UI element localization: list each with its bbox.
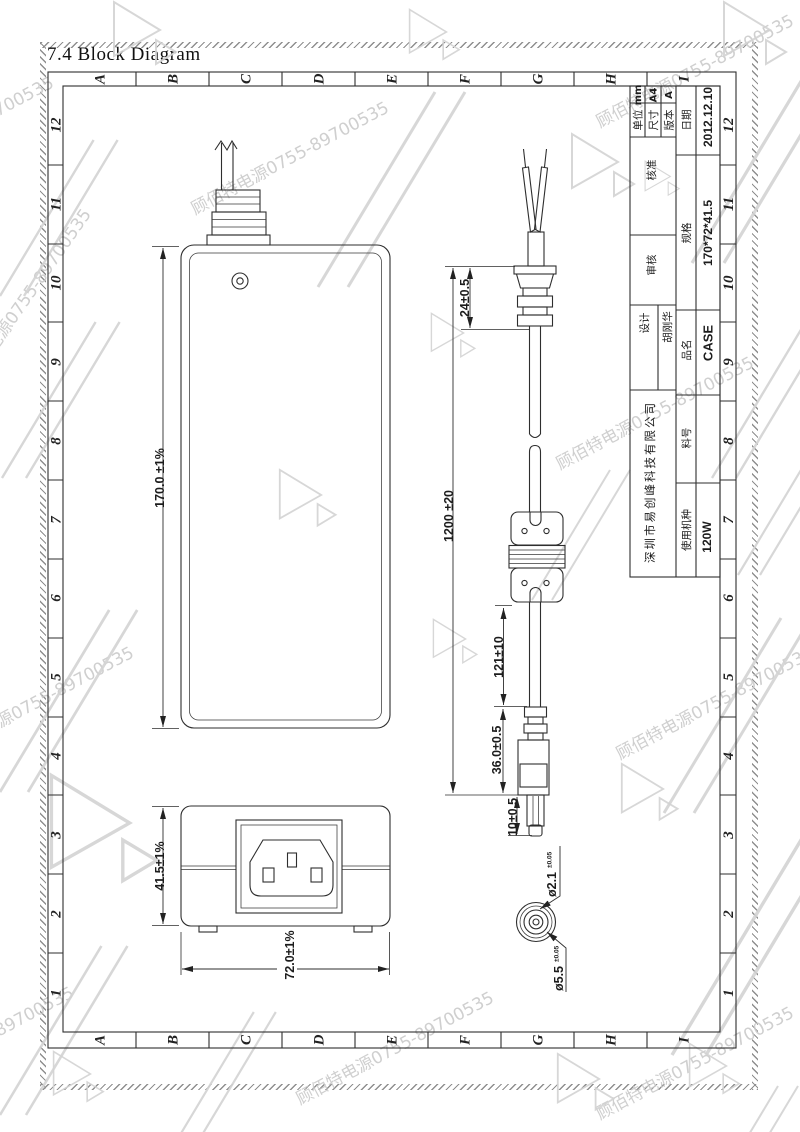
plug-barrel <box>527 795 544 826</box>
approve-label: 核准 <box>645 160 658 181</box>
grid-number: 2 <box>49 910 65 919</box>
version-value: A <box>664 91 675 99</box>
grid-number: 6 <box>721 594 737 602</box>
grid-number: 11 <box>49 197 65 211</box>
emi-filter <box>509 512 565 602</box>
watermark-slash <box>738 432 800 575</box>
grid-letter: I <box>677 1036 693 1044</box>
grid-number: 6 <box>49 594 65 602</box>
grid-letter: E <box>385 74 401 85</box>
wire-left <box>523 167 537 232</box>
grid-letter: B <box>166 74 182 85</box>
watermark-slash <box>2 322 120 478</box>
version-label: 版本 <box>663 109 676 130</box>
grid-letter: C <box>239 1034 255 1045</box>
grid-letter: H <box>604 1033 620 1047</box>
grid-letter: A <box>93 1035 109 1046</box>
cable-upper <box>530 326 541 512</box>
unit-label: 单位 <box>632 109 645 130</box>
parting-line <box>181 866 390 870</box>
cable-bushing <box>514 266 556 326</box>
size-value: A4 <box>649 88 660 103</box>
grid-number: 7 <box>721 516 737 524</box>
grid-letter: A <box>93 74 109 85</box>
product-label: 品名 <box>680 340 693 361</box>
watermark-layer: 顾佰特电源0755-89700535 顾佰特电源0755-89700535 顾佰… <box>0 2 800 1132</box>
grid-number: 4 <box>49 752 65 761</box>
grid-letter: G <box>531 73 547 84</box>
size-label: 尺寸 <box>647 110 660 131</box>
number-strip-dividers <box>48 165 736 953</box>
watermark-triangles <box>51 775 156 880</box>
case-outline <box>181 245 390 728</box>
watermark-text: 顾佰特电源0755-89700535 <box>0 73 57 194</box>
dim-case-width: 72.0±1% <box>181 930 390 979</box>
grid-number: 5 <box>49 673 65 681</box>
model-value: 120W <box>700 521 714 553</box>
barrel-outer-circle <box>517 903 556 942</box>
dim-text-case-width: 72.0±1% <box>283 930 297 979</box>
grid-number: 12 <box>49 117 65 133</box>
case-foot <box>199 926 217 932</box>
title-block: mm A4 A 单位 尺寸 版本 核准 审核 设计 胡刚华 日期 2012.12… <box>630 85 720 577</box>
watermark-slash <box>712 322 800 478</box>
grid-number: 12 <box>721 117 737 133</box>
watermark-text: 顾佰特电源0755-89700535 <box>0 643 137 764</box>
grid-numbers-right: 12 11 10 9 8 7 6 5 4 3 2 1 <box>721 117 737 997</box>
watermark-triangles <box>572 134 634 196</box>
case-foot <box>354 926 372 932</box>
c14-pin-right <box>311 868 322 882</box>
cable-break-squiggle <box>215 141 237 150</box>
watermark-triangles <box>280 470 336 526</box>
grid-number: 7 <box>49 516 65 524</box>
dim-text-bushing: 24±0.5 <box>458 279 472 317</box>
dim-text-pin-dia: ø2.1 <box>545 872 559 897</box>
watermark-text: 顾佰特电源0755-89700535 <box>613 643 800 764</box>
company-name: 深圳市易创峰科技有限公司 <box>643 401 657 563</box>
ac-cable-bushing <box>207 190 270 245</box>
dim-text-plug-body: 36.0±0.5 <box>490 726 504 775</box>
case-inner-outline <box>190 253 382 720</box>
grid-number: 10 <box>49 275 65 291</box>
plug-end-view: ø2.1 ±0.05 ø5.5 ±0.05 <box>517 846 567 992</box>
letter-strip-dividers <box>136 72 647 1048</box>
pin-circle <box>529 915 543 929</box>
grid-letter: D <box>312 73 328 85</box>
grid-number: 9 <box>49 358 65 366</box>
dc-plug <box>518 707 549 836</box>
grid-letter: E <box>385 1035 401 1046</box>
filter-notch-top <box>530 512 541 526</box>
review-label: 审核 <box>645 254 658 275</box>
grid-number: 10 <box>721 275 737 291</box>
grid-letters-bottom: A B C D E F G H I <box>93 1033 693 1047</box>
sheet-frame: A B C D E F G H I A B C D E F G H I <box>48 72 737 1048</box>
dim-cable-length: 1200 ±20 <box>442 268 456 793</box>
outer-frame <box>48 72 736 1048</box>
dim-text-plug-tip: 10±0.5 <box>506 798 520 836</box>
dim-text-barrel-tol: ±0.05 <box>554 945 561 962</box>
grid-letter: H <box>604 72 620 86</box>
spec-value: 170*72*41.5 <box>701 200 715 266</box>
grid-number: 1 <box>721 989 737 997</box>
plug-knurl <box>520 764 547 787</box>
grid-number: 4 <box>721 752 737 761</box>
grid-letter: D <box>312 1034 328 1046</box>
dim-text-cable-length: 1200 ±20 <box>442 490 456 542</box>
led-indicator-center <box>237 278 243 284</box>
grid-number: 9 <box>721 358 737 366</box>
grid-number: 5 <box>721 673 737 681</box>
watermark-slash <box>700 1086 798 1132</box>
heat-shrink <box>528 232 544 266</box>
grid-number: 2 <box>721 910 737 919</box>
watermark-text: 顾佰特电源0755-89700535 <box>0 983 77 1104</box>
product-value: CASE <box>701 325 716 361</box>
drawing-page: 7.4 Block Diagram 顾佰特电源0755-89700535 顾佰特… <box>0 0 800 1132</box>
watermark-text: 顾佰特电源0755-89700535 <box>293 988 497 1109</box>
watermark-slash <box>168 1012 276 1132</box>
dim-text-case-length: 170.0 ±1% <box>153 448 167 508</box>
grid-number: 3 <box>49 831 65 840</box>
wire-right <box>535 167 548 232</box>
filter-ribs <box>509 546 565 569</box>
date-value: 2012.12.10 <box>701 87 715 147</box>
grid-number: 3 <box>721 831 737 840</box>
grid-letter: C <box>239 73 255 84</box>
drawing-canvas: 顾佰特电源0755-89700535 顾佰特电源0755-89700535 顾佰… <box>0 0 800 1132</box>
adapter-end-view: 41.5±1% 72.0±1% <box>152 806 390 980</box>
dim-case-height: 41.5±1% <box>152 807 179 926</box>
unit-value: mm <box>633 85 644 106</box>
wire-tip <box>524 149 526 167</box>
dim-text-dc-cable: 121±10 <box>492 636 506 678</box>
model-label: 使用机种 <box>680 509 693 551</box>
dim-case-length: 170.0 ±1% <box>152 247 179 729</box>
watermark-triangles <box>410 10 460 60</box>
grid-number: 11 <box>721 197 737 211</box>
grid-letter: I <box>677 75 693 83</box>
design-value: 胡刚华 <box>661 311 674 343</box>
grid-letter: F <box>458 74 474 85</box>
cable-lower <box>530 602 541 707</box>
dim-dc-cable: 121±10 <box>492 606 527 707</box>
dim-text-case-height: 41.5±1% <box>153 841 167 890</box>
dim-text-barrel-dia: ø5.5 <box>552 966 566 991</box>
c14-pin-earth <box>288 853 297 867</box>
dim-bushing: 24±0.5 <box>445 267 529 330</box>
plug-tip <box>529 825 542 836</box>
grid-number: 8 <box>721 437 737 445</box>
led-indicator <box>232 273 248 289</box>
spec-label: 规格 <box>680 222 693 243</box>
cable-break-resume <box>530 446 541 513</box>
watermark-triangles <box>114 2 176 64</box>
watermark-triangles <box>622 764 678 820</box>
watermark-triangles <box>433 619 476 662</box>
dim-plug-tip: 10±0.5 <box>506 797 532 836</box>
watermark-text: 顾佰特电源0755-89700535 <box>188 98 392 219</box>
wire-tip <box>545 149 547 167</box>
cable-break-cap <box>530 434 541 438</box>
grid-letter: G <box>531 1034 547 1045</box>
grid-letter: B <box>166 1035 182 1046</box>
date-label: 日期 <box>681 110 693 131</box>
grid-number: 1 <box>49 989 65 997</box>
dc-cable-assembly: 24±0.5 1200 ±20 121±10 36.0±0.5 10±0.5 <box>442 149 566 992</box>
design-label: 设计 <box>638 312 651 333</box>
part-no-label: 料号 <box>680 428 693 449</box>
watermark-slash <box>0 140 118 296</box>
stripped-wires <box>523 149 548 232</box>
dim-text-pin-tol: ±0.05 <box>547 851 554 868</box>
grid-letter: F <box>458 1035 474 1046</box>
c14-pin-left <box>263 868 274 882</box>
grid-letters-top: A B C D E F G H I <box>93 72 693 86</box>
grid-number: 8 <box>49 437 65 445</box>
